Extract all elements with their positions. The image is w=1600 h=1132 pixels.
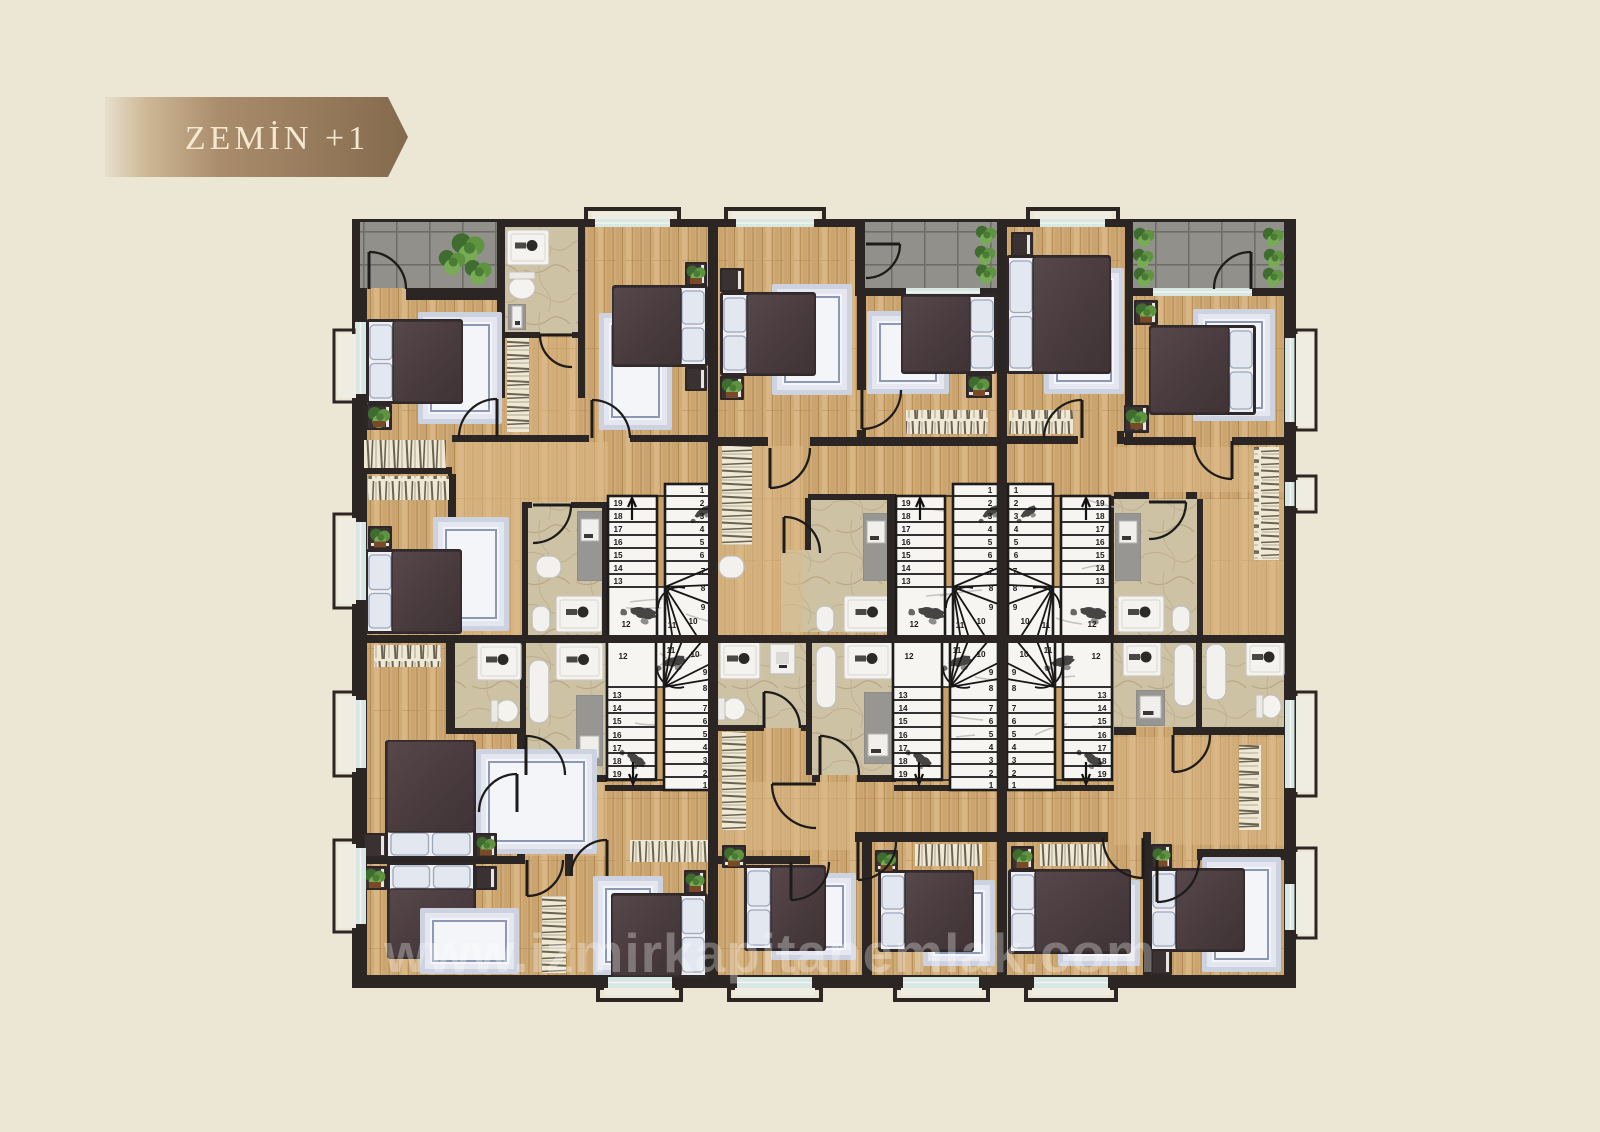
svg-text:7: 7 [1013, 567, 1018, 576]
svg-text:5: 5 [988, 538, 993, 547]
svg-text:10: 10 [976, 617, 986, 626]
svg-text:17: 17 [1097, 744, 1107, 753]
svg-text:1: 1 [988, 486, 993, 495]
svg-text:15: 15 [1097, 717, 1107, 726]
svg-text:6: 6 [703, 717, 708, 726]
svg-text:11: 11 [953, 646, 962, 655]
svg-text:15: 15 [612, 717, 622, 726]
svg-text:4: 4 [989, 743, 994, 752]
svg-text:6: 6 [988, 551, 993, 560]
svg-text:2: 2 [1014, 499, 1019, 508]
svg-text:19: 19 [612, 770, 622, 779]
svg-text:7: 7 [1012, 704, 1017, 713]
svg-text:2: 2 [700, 499, 705, 508]
svg-text:12: 12 [1087, 620, 1097, 629]
svg-text:10: 10 [976, 650, 986, 659]
svg-text:12: 12 [618, 652, 628, 661]
svg-text:6: 6 [1012, 717, 1017, 726]
svg-text:2: 2 [988, 499, 993, 508]
svg-text:14: 14 [901, 564, 911, 573]
svg-text:2: 2 [1012, 769, 1017, 778]
svg-text:16: 16 [898, 731, 908, 740]
svg-text:17: 17 [1095, 525, 1105, 534]
svg-text:17: 17 [613, 525, 623, 534]
svg-text:5: 5 [703, 730, 708, 739]
svg-text:5: 5 [989, 730, 994, 739]
svg-text:3: 3 [989, 756, 994, 765]
svg-text:4: 4 [1012, 743, 1017, 752]
svg-text:11: 11 [668, 621, 677, 630]
svg-text:1: 1 [1014, 486, 1019, 495]
svg-text:18: 18 [1097, 757, 1107, 766]
svg-text:3: 3 [1012, 756, 1017, 765]
svg-text:10: 10 [1020, 617, 1030, 626]
svg-text:16: 16 [1097, 731, 1107, 740]
svg-text:3: 3 [988, 512, 993, 521]
svg-text:9: 9 [1013, 603, 1018, 612]
svg-text:13: 13 [612, 691, 622, 700]
svg-text:www.izmirkapitanemlak.com: www.izmirkapitanemlak.com [383, 922, 1156, 984]
svg-text:17: 17 [898, 744, 908, 753]
svg-text:7: 7 [703, 704, 708, 713]
svg-text:1: 1 [700, 486, 705, 495]
svg-text:4: 4 [988, 525, 993, 534]
svg-text:12: 12 [621, 620, 631, 629]
svg-text:10: 10 [688, 617, 698, 626]
svg-text:7: 7 [989, 567, 994, 576]
svg-text:15: 15 [898, 717, 908, 726]
svg-text:11: 11 [667, 646, 676, 655]
svg-text:11: 11 [1042, 621, 1051, 630]
svg-text:8: 8 [1013, 584, 1018, 593]
svg-text:13: 13 [898, 691, 908, 700]
svg-text:8: 8 [703, 684, 708, 693]
svg-text:ZEMİN +1: ZEMİN +1 [185, 120, 369, 157]
svg-text:19: 19 [898, 770, 908, 779]
svg-text:2: 2 [703, 769, 708, 778]
svg-text:11: 11 [956, 621, 965, 630]
svg-text:12: 12 [909, 620, 919, 629]
svg-text:7: 7 [989, 704, 994, 713]
svg-text:18: 18 [613, 512, 623, 521]
svg-text:10: 10 [1019, 650, 1029, 659]
svg-text:19: 19 [901, 499, 911, 508]
svg-text:6: 6 [989, 717, 994, 726]
svg-text:16: 16 [901, 538, 911, 547]
svg-text:8: 8 [989, 584, 994, 593]
svg-text:19: 19 [1097, 770, 1107, 779]
svg-text:13: 13 [901, 577, 911, 586]
svg-text:18: 18 [1095, 512, 1105, 521]
svg-text:13: 13 [1095, 577, 1105, 586]
svg-text:5: 5 [1012, 730, 1017, 739]
svg-text:5: 5 [1014, 538, 1019, 547]
svg-text:9: 9 [703, 668, 708, 677]
svg-text:12: 12 [904, 652, 914, 661]
svg-text:10: 10 [690, 650, 700, 659]
svg-text:9: 9 [989, 603, 994, 612]
svg-text:9: 9 [989, 668, 994, 677]
svg-text:16: 16 [1095, 538, 1105, 547]
svg-text:15: 15 [1095, 551, 1105, 560]
svg-text:16: 16 [612, 731, 622, 740]
svg-text:15: 15 [901, 551, 911, 560]
svg-text:13: 13 [613, 577, 623, 586]
svg-text:8: 8 [701, 584, 706, 593]
svg-text:3: 3 [1014, 512, 1019, 521]
svg-text:9: 9 [701, 603, 706, 612]
svg-text:1: 1 [703, 781, 708, 790]
svg-text:7: 7 [701, 567, 706, 576]
svg-text:8: 8 [1012, 684, 1017, 693]
svg-text:14: 14 [898, 704, 908, 713]
svg-text:8: 8 [989, 684, 994, 693]
svg-text:18: 18 [612, 757, 622, 766]
svg-text:19: 19 [613, 499, 623, 508]
svg-text:15: 15 [613, 551, 623, 560]
svg-text:14: 14 [612, 704, 622, 713]
svg-text:12: 12 [1091, 652, 1101, 661]
svg-text:19: 19 [1095, 499, 1105, 508]
svg-text:2: 2 [989, 769, 994, 778]
svg-text:1: 1 [1012, 781, 1017, 790]
svg-text:6: 6 [700, 551, 705, 560]
svg-text:18: 18 [898, 757, 908, 766]
svg-text:14: 14 [1095, 564, 1105, 573]
svg-text:4: 4 [1014, 525, 1019, 534]
svg-text:13: 13 [1097, 691, 1107, 700]
svg-text:3: 3 [703, 756, 708, 765]
svg-text:14: 14 [613, 564, 623, 573]
svg-text:4: 4 [703, 743, 708, 752]
svg-text:14: 14 [1097, 704, 1107, 713]
svg-text:17: 17 [612, 744, 622, 753]
svg-text:9: 9 [1012, 668, 1017, 677]
svg-text:11: 11 [1044, 646, 1053, 655]
svg-text:17: 17 [901, 525, 911, 534]
svg-text:18: 18 [901, 512, 911, 521]
svg-text:4: 4 [700, 525, 705, 534]
svg-text:6: 6 [1014, 551, 1019, 560]
svg-text:1: 1 [989, 781, 994, 790]
svg-text:16: 16 [613, 538, 623, 547]
svg-text:5: 5 [700, 538, 705, 547]
svg-text:3: 3 [700, 512, 705, 521]
